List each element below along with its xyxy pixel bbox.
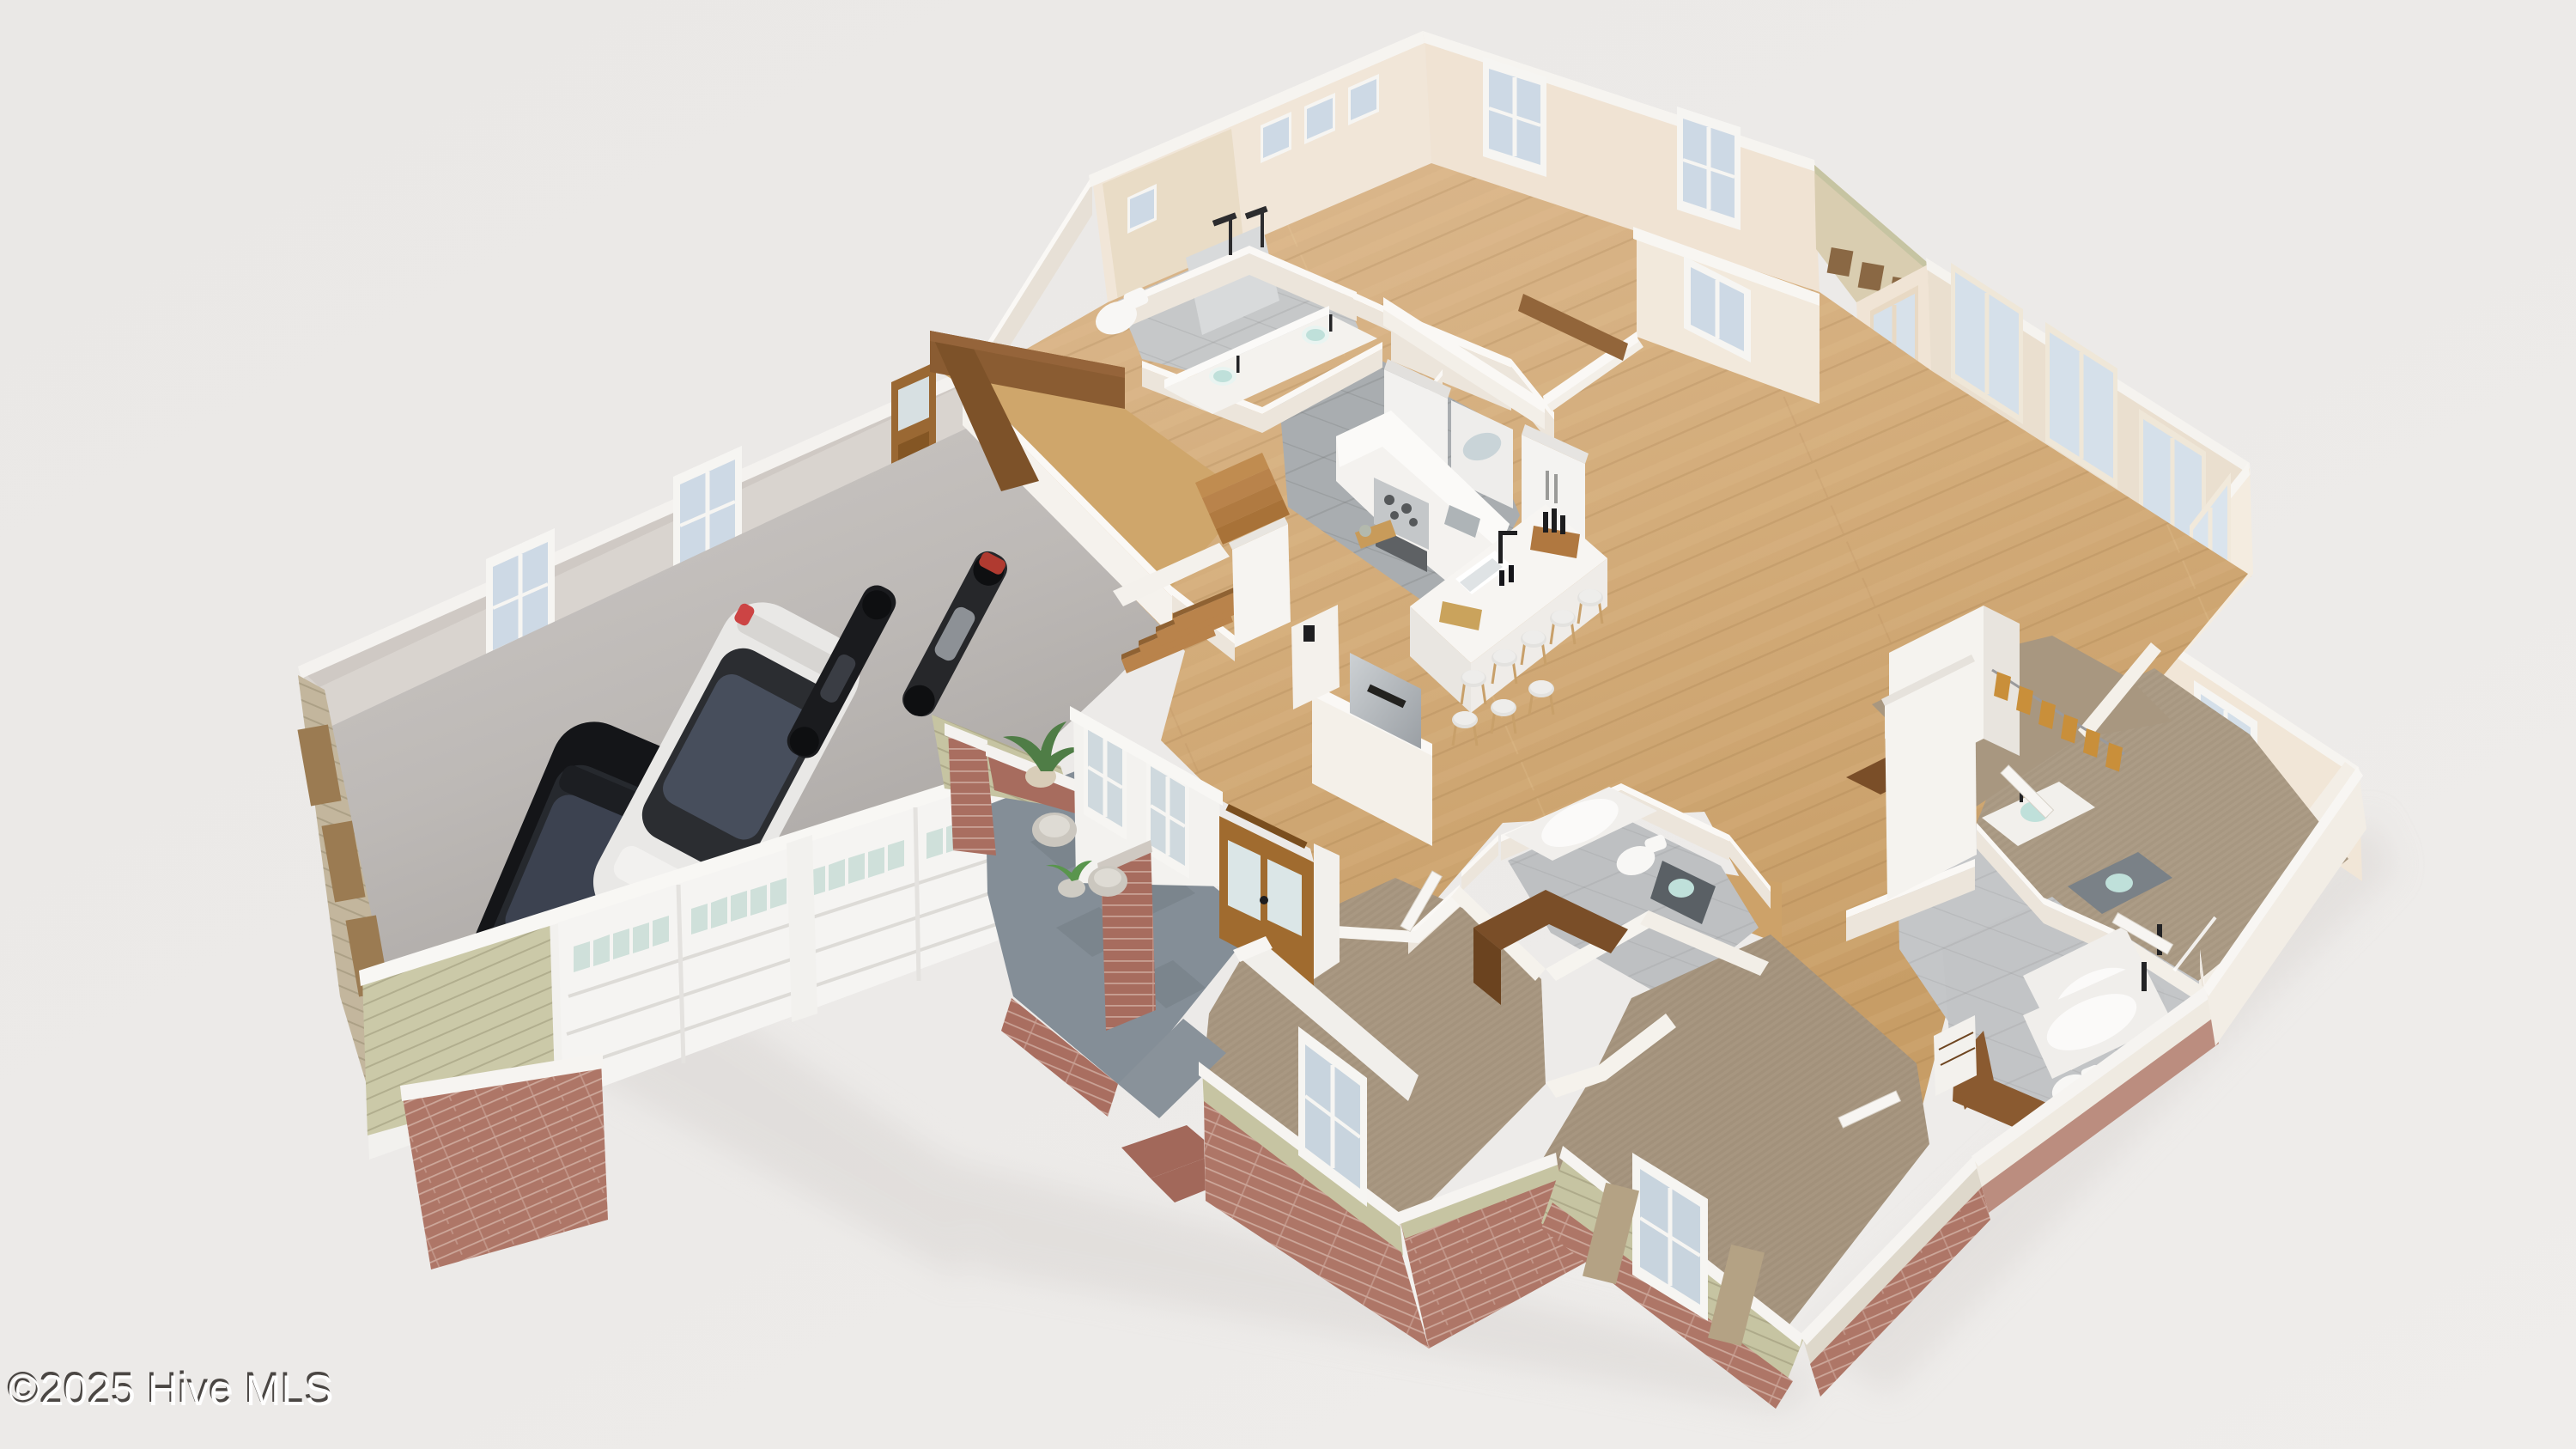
svg-text:©2025 Hive MLS: ©2025 Hive MLS <box>9 1367 334 1415</box>
